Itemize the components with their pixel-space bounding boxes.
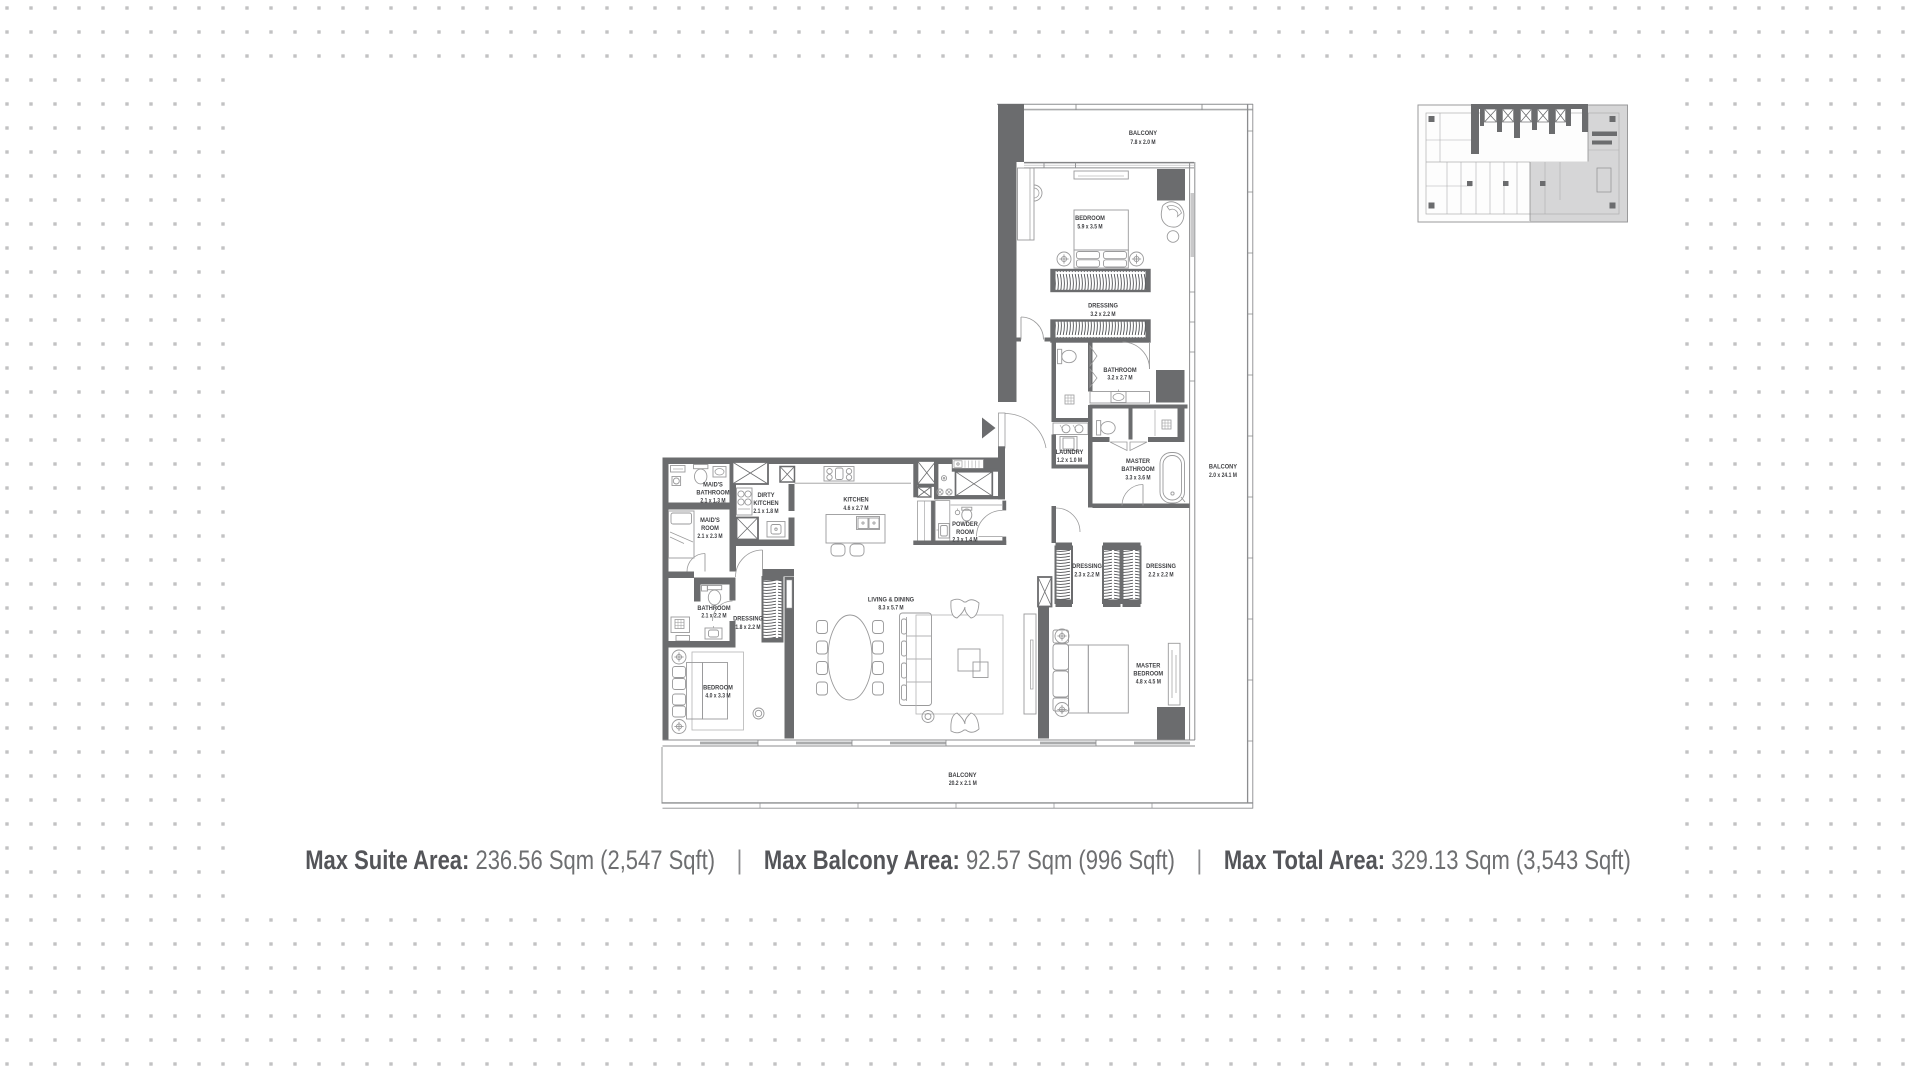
svg-text:2.3 x 2.2 M: 2.3 x 2.2 M [1074, 572, 1100, 578]
svg-text:MASTER: MASTER [1126, 458, 1150, 466]
svg-text:2.1 x 2.2 M: 2.1 x 2.2 M [701, 613, 727, 619]
svg-text:2.0 x 24.1 M: 2.0 x 24.1 M [1209, 473, 1237, 479]
svg-text:BATHROOM: BATHROOM [1121, 466, 1154, 474]
svg-text:2.1 x 1.3 M: 2.1 x 1.3 M [700, 498, 726, 504]
svg-text:Max Suite Area: 236.56 Sqm (2,: Max Suite Area: 236.56 Sqm (2,547 Sqft)|… [305, 846, 1631, 875]
svg-text:LAUNDRY: LAUNDRY [1056, 449, 1084, 457]
svg-text:2.2 x 2.2 M: 2.2 x 2.2 M [1148, 572, 1174, 578]
svg-text:BALCONY: BALCONY [1209, 463, 1238, 471]
svg-text:1.2 x 1.0 M: 1.2 x 1.0 M [1057, 458, 1083, 464]
svg-text:MASTER: MASTER [1136, 662, 1160, 670]
svg-text:BATHROOM: BATHROOM [697, 605, 730, 613]
svg-text:POWDER: POWDER [952, 521, 978, 529]
svg-text:3.2 x 2.7 M: 3.2 x 2.7 M [1107, 375, 1133, 381]
svg-text:4.8 x 4.5 M: 4.8 x 4.5 M [1136, 679, 1162, 685]
svg-text:BALCONY: BALCONY [1129, 130, 1158, 138]
svg-text:8.3 x 5.7 M: 8.3 x 5.7 M [878, 605, 904, 611]
svg-text:BEDROOM: BEDROOM [1133, 670, 1163, 678]
svg-text:BALCONY: BALCONY [948, 772, 977, 780]
svg-text:7.8 x 2.0 M: 7.8 x 2.0 M [1130, 140, 1156, 146]
svg-text:KITCHEN: KITCHEN [843, 496, 869, 504]
svg-text:BEDROOM: BEDROOM [1075, 215, 1105, 223]
svg-text:3.2 x 2.2 M: 3.2 x 2.2 M [1090, 312, 1116, 318]
svg-text:MAID'S: MAID'S [703, 481, 723, 489]
svg-text:2.1 x 1.8 M: 2.1 x 1.8 M [753, 509, 779, 515]
svg-text:DRESSING: DRESSING [1088, 302, 1118, 310]
svg-text:ROOM: ROOM [956, 529, 974, 537]
svg-text:MAID'S: MAID'S [700, 517, 720, 525]
svg-text:DRESSING: DRESSING [733, 615, 763, 623]
svg-text:DRESSING: DRESSING [1072, 563, 1102, 571]
svg-text:3.3 x 3.6 M: 3.3 x 3.6 M [1125, 475, 1151, 481]
svg-text:ROOM: ROOM [701, 525, 719, 533]
svg-text:2.1 x 2.3 M: 2.1 x 2.3 M [697, 534, 723, 540]
svg-text:20.2 x 2.1 M: 20.2 x 2.1 M [949, 781, 977, 787]
svg-text:4.0 x 3.3 M: 4.0 x 3.3 M [705, 693, 731, 699]
svg-text:DRESSING: DRESSING [1146, 563, 1176, 571]
svg-text:DIRTY: DIRTY [757, 492, 775, 500]
svg-text:KITCHEN: KITCHEN [753, 500, 779, 508]
svg-text:BATHROOM: BATHROOM [1103, 367, 1136, 375]
svg-text:5.9 x 3.5 M: 5.9 x 3.5 M [1077, 224, 1103, 230]
svg-text:1.8 x 2.2 M: 1.8 x 2.2 M [735, 625, 761, 631]
svg-text:LIVING & DINING: LIVING & DINING [868, 596, 914, 604]
svg-text:4.6 x 2.7 M: 4.6 x 2.7 M [843, 506, 869, 512]
svg-text:BEDROOM: BEDROOM [703, 684, 733, 692]
svg-text:2.3 x 1.4 M: 2.3 x 1.4 M [952, 537, 978, 543]
svg-text:BATHROOM: BATHROOM [696, 489, 729, 497]
